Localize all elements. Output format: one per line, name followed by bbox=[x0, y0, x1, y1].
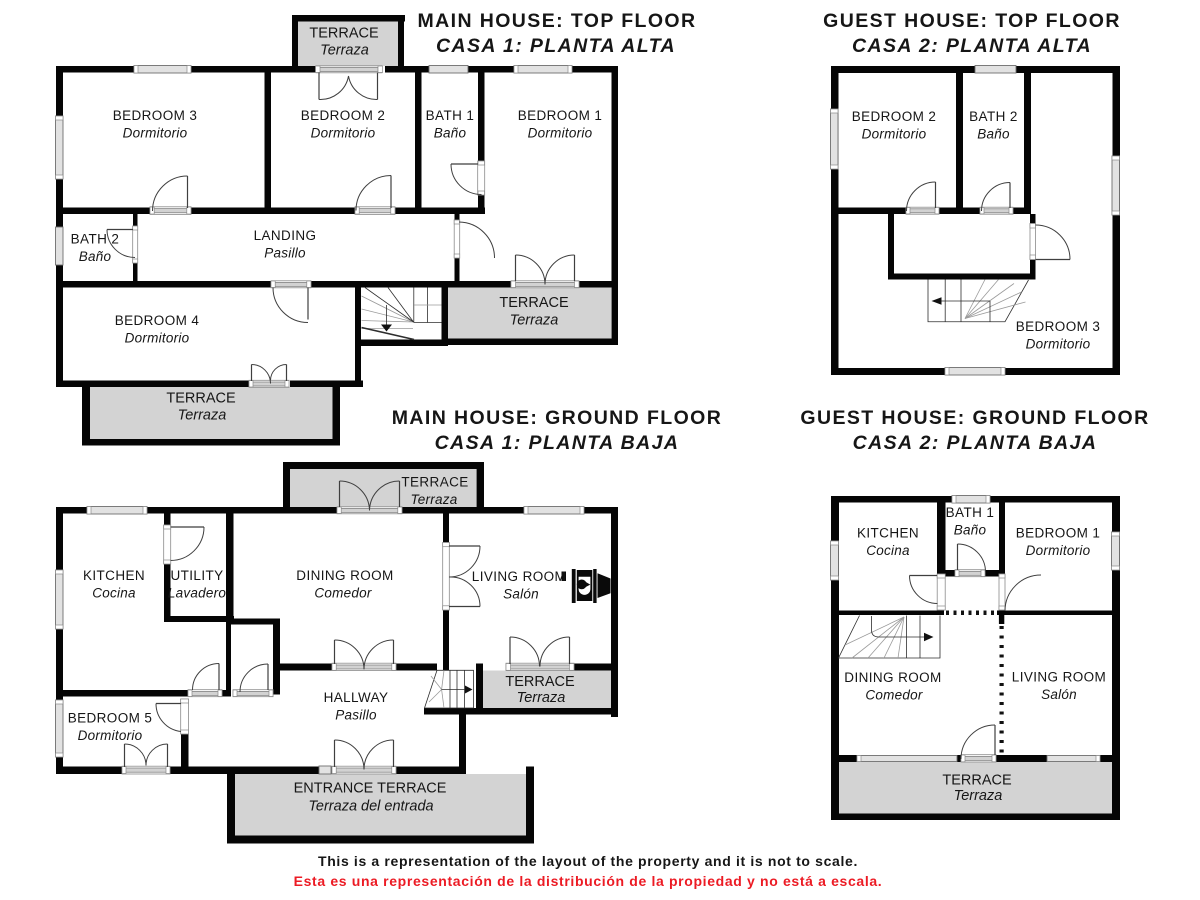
svg-text:BEDROOM 5: BEDROOM 5 bbox=[68, 711, 153, 726]
svg-text:Baño: Baño bbox=[954, 523, 987, 538]
svg-text:CASA 1: PLANTA BAJA: CASA 1: PLANTA BAJA bbox=[435, 432, 680, 454]
svg-text:Salón: Salón bbox=[1041, 687, 1077, 702]
svg-text:CASA 2: PLANTA BAJA: CASA 2: PLANTA BAJA bbox=[853, 432, 1098, 454]
svg-text:BATH 2: BATH 2 bbox=[969, 109, 1018, 124]
svg-text:BATH 2: BATH 2 bbox=[71, 232, 120, 247]
svg-text:KITCHEN: KITCHEN bbox=[857, 526, 919, 541]
svg-text:Dormitorio: Dormitorio bbox=[1026, 337, 1091, 352]
svg-text:LIVING ROOM: LIVING ROOM bbox=[472, 569, 566, 584]
svg-text:MAIN HOUSE: TOP FLOOR: MAIN HOUSE: TOP FLOOR bbox=[418, 10, 697, 32]
svg-text:Pasillo: Pasillo bbox=[335, 708, 377, 723]
svg-text:ENTRANCE TERRACE: ENTRANCE TERRACE bbox=[294, 781, 447, 797]
svg-text:CASA 2: PLANTA ALTA: CASA 2: PLANTA ALTA bbox=[852, 35, 1092, 57]
svg-text:Dormitorio: Dormitorio bbox=[125, 331, 190, 346]
svg-text:Dormitorio: Dormitorio bbox=[311, 126, 376, 141]
svg-text:BEDROOM 2: BEDROOM 2 bbox=[301, 108, 386, 123]
svg-text:TERRACE: TERRACE bbox=[942, 773, 1012, 789]
svg-text:Terraza: Terraza bbox=[954, 788, 1003, 804]
svg-text:Terraza: Terraza bbox=[178, 408, 227, 424]
svg-text:LIVING ROOM: LIVING ROOM bbox=[1012, 670, 1106, 685]
svg-text:TERRACE: TERRACE bbox=[166, 391, 236, 407]
svg-text:Baño: Baño bbox=[79, 249, 112, 264]
svg-text:BATH 1: BATH 1 bbox=[946, 505, 995, 520]
svg-text:Salón: Salón bbox=[503, 587, 539, 602]
svg-text:Dormitorio: Dormitorio bbox=[528, 126, 593, 141]
svg-text:This is a representation of th: This is a representation of the layout o… bbox=[318, 853, 858, 869]
svg-text:Comedor: Comedor bbox=[865, 688, 923, 703]
svg-text:Lavadero: Lavadero bbox=[168, 586, 227, 601]
svg-text:GUEST HOUSE: GROUND FLOOR: GUEST HOUSE: GROUND FLOOR bbox=[800, 407, 1149, 429]
svg-text:Dormitorio: Dormitorio bbox=[78, 728, 143, 743]
svg-text:BATH 1: BATH 1 bbox=[426, 108, 475, 123]
svg-text:TERRACE: TERRACE bbox=[309, 26, 379, 42]
svg-text:Terraza del entrada: Terraza del entrada bbox=[308, 799, 433, 815]
svg-text:Terraza: Terraza bbox=[517, 690, 566, 706]
svg-text:UTILITY: UTILITY bbox=[170, 568, 223, 583]
svg-text:Terraza: Terraza bbox=[510, 313, 559, 329]
svg-text:TERRACE: TERRACE bbox=[505, 674, 575, 690]
svg-text:BEDROOM 2: BEDROOM 2 bbox=[852, 109, 937, 124]
svg-text:DINING ROOM: DINING ROOM bbox=[844, 670, 941, 685]
svg-text:Esta es una representación de: Esta es una representación de la distrib… bbox=[294, 873, 883, 889]
svg-text:Terraza: Terraza bbox=[320, 43, 369, 59]
svg-text:LANDING: LANDING bbox=[254, 228, 317, 243]
svg-text:Pasillo: Pasillo bbox=[264, 246, 306, 261]
svg-text:Dormitorio: Dormitorio bbox=[862, 127, 927, 142]
svg-text:Comedor: Comedor bbox=[314, 586, 372, 601]
svg-text:HALLWAY: HALLWAY bbox=[324, 690, 389, 705]
svg-text:Baño: Baño bbox=[977, 127, 1010, 142]
svg-text:CASA 1: PLANTA ALTA: CASA 1: PLANTA ALTA bbox=[436, 35, 676, 57]
svg-text:TERRACE: TERRACE bbox=[499, 295, 569, 311]
svg-text:GUEST HOUSE: TOP FLOOR: GUEST HOUSE: TOP FLOOR bbox=[823, 10, 1121, 32]
svg-text:Cocina: Cocina bbox=[866, 543, 910, 558]
svg-text:Dormitorio: Dormitorio bbox=[123, 126, 188, 141]
svg-text:Baño: Baño bbox=[434, 126, 467, 141]
svg-text:BEDROOM 1: BEDROOM 1 bbox=[1016, 526, 1101, 541]
svg-text:BEDROOM 1: BEDROOM 1 bbox=[518, 108, 603, 123]
svg-text:BEDROOM 4: BEDROOM 4 bbox=[115, 313, 200, 328]
svg-text:KITCHEN: KITCHEN bbox=[83, 568, 145, 583]
svg-text:MAIN HOUSE: GROUND FLOOR: MAIN HOUSE: GROUND FLOOR bbox=[392, 407, 722, 429]
svg-text:BEDROOM 3: BEDROOM 3 bbox=[1016, 319, 1101, 334]
svg-text:Cocina: Cocina bbox=[92, 586, 136, 601]
svg-text:DINING ROOM: DINING ROOM bbox=[296, 568, 393, 583]
svg-text:Dormitorio: Dormitorio bbox=[1026, 543, 1091, 558]
svg-text:TERRACE: TERRACE bbox=[401, 475, 468, 490]
svg-text:Terraza: Terraza bbox=[410, 492, 457, 507]
svg-text:BEDROOM 3: BEDROOM 3 bbox=[113, 108, 198, 123]
